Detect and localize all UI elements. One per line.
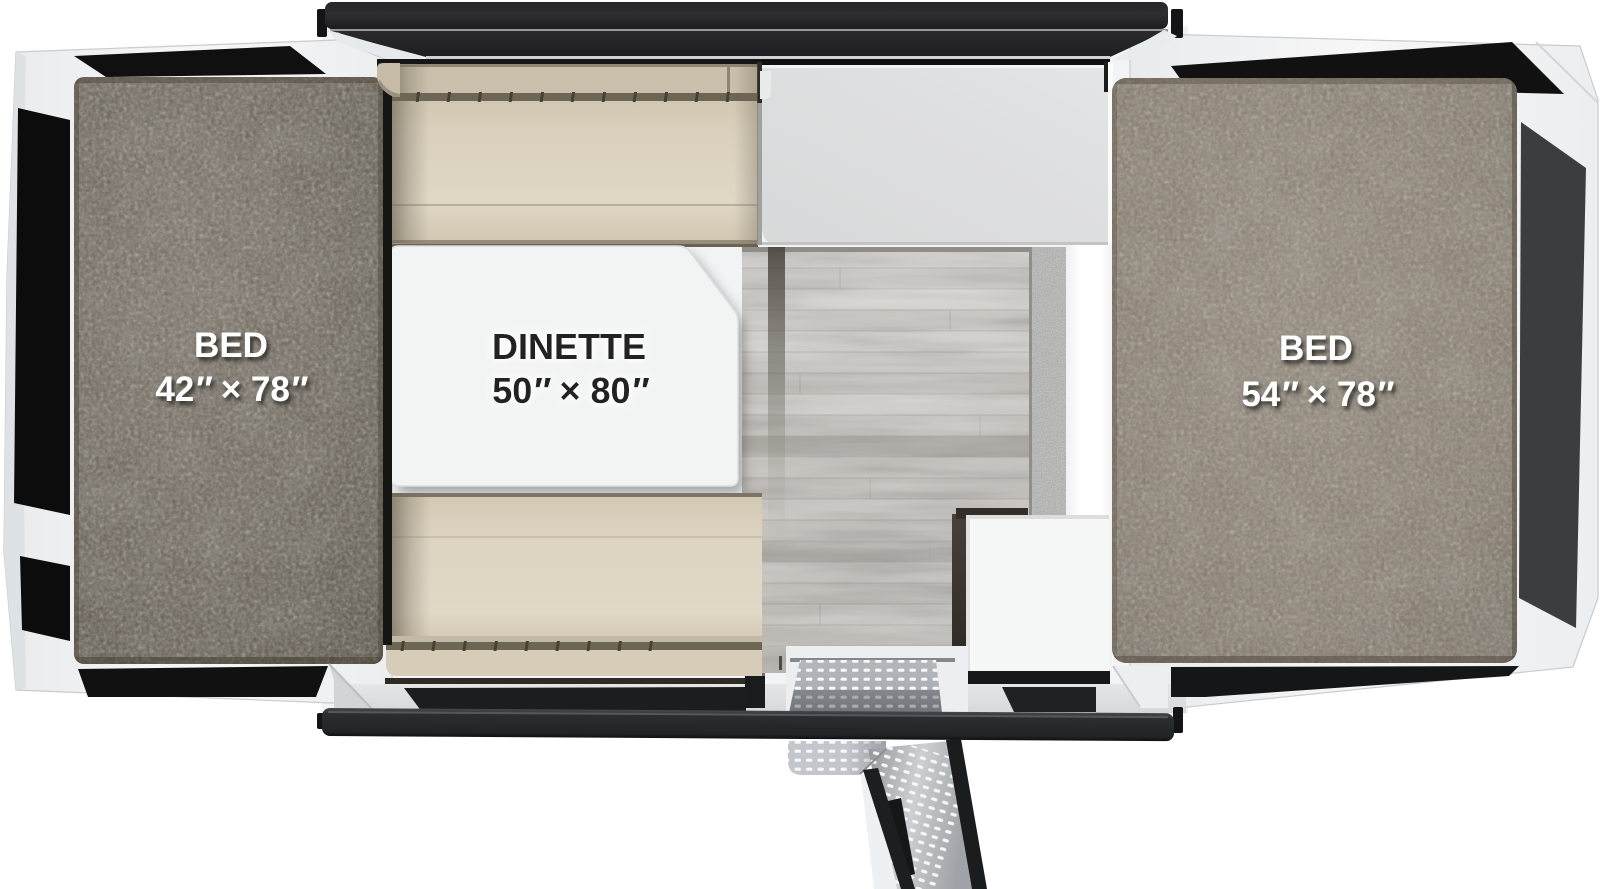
- svg-text:42″ × 78″: 42″ × 78″: [155, 370, 309, 409]
- svg-text:BED: BED: [194, 326, 268, 365]
- svg-text:50″ × 80″: 50″ × 80″: [492, 370, 649, 411]
- svg-text:DINETTE: DINETTE: [492, 326, 646, 367]
- svg-text:54″ × 78″: 54″ × 78″: [1241, 375, 1395, 414]
- svg-text:BED: BED: [1279, 329, 1353, 368]
